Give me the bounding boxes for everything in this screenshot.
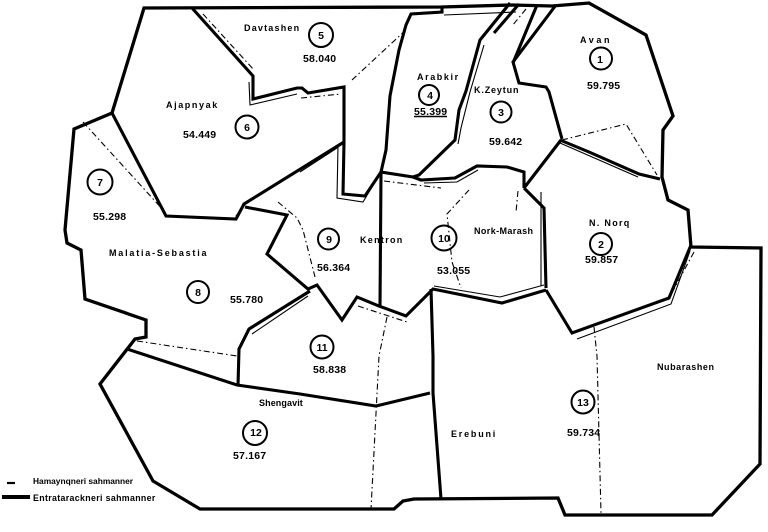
svg-text:Entratarackneri sahmanner: Entratarackneri sahmanner [33,493,156,503]
svg-text:Ajapnyak: Ajapnyak [166,100,219,110]
svg-text:3: 3 [498,107,504,119]
svg-text:7: 7 [97,177,103,189]
svg-text:9: 9 [326,234,332,246]
svg-text:13: 13 [577,397,589,409]
svg-text:55.780: 55.780 [230,294,263,306]
svg-text:57.167: 57.167 [233,450,266,462]
svg-text:6: 6 [244,122,250,134]
svg-text:Avan: Avan [580,35,612,45]
svg-text:59.734: 59.734 [567,427,600,439]
svg-text:59.795: 59.795 [587,80,620,92]
svg-text:Kentron: Kentron [360,235,404,245]
svg-text:Erebuni: Erebuni [451,429,497,439]
svg-text:55.298: 55.298 [93,211,126,223]
svg-text:2: 2 [598,239,604,251]
svg-text:10: 10 [438,233,450,245]
svg-text:11: 11 [316,342,327,354]
svg-text:54.449: 54.449 [183,129,216,141]
svg-text:56.364: 56.364 [317,262,350,274]
svg-text:59.642: 59.642 [489,136,522,148]
svg-text:N. Norq: N. Norq [589,218,631,228]
svg-text:Nubarashen: Nubarashen [657,362,715,372]
svg-text:Davtashen: Davtashen [244,23,300,33]
svg-text:Nork-Marash: Nork-Marash [474,226,533,236]
svg-text:12: 12 [250,427,262,439]
svg-text:5: 5 [318,30,324,42]
svg-text:53.055: 53.055 [437,265,470,277]
svg-text:58.040: 58.040 [303,53,336,65]
svg-text:59.857: 59.857 [585,254,618,266]
svg-text:Shengavit: Shengavit [259,398,303,408]
svg-text:K.Zeytun: K.Zeytun [474,85,519,95]
svg-text:58.838: 58.838 [313,364,346,376]
svg-text:1: 1 [597,54,603,66]
svg-text:Arabkir: Arabkir [417,72,460,82]
svg-text:8: 8 [195,287,201,299]
svg-text:Malatia-Sebastia: Malatia-Sebastia [109,248,208,258]
svg-text:Hamaynqneri sahmanner: Hamaynqneri sahmanner [33,476,134,486]
svg-text:4: 4 [427,90,433,102]
